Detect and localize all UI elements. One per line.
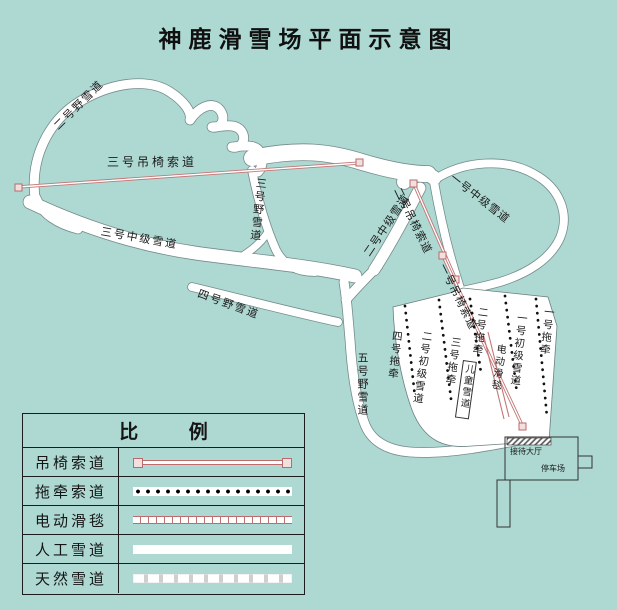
legend-box: 比 例 吊椅索道 拖牵索道 电动滑毯 人工雪道 天然雪道 [22,413,305,595]
parking-strip [497,480,510,527]
chairlift-line-symbol [138,460,287,465]
legend-label-tow: 拖牵索道 [23,477,119,505]
lift-label-chair-3: 三号吊椅索道 [107,156,197,168]
legend-label-carpet: 电动滑毯 [23,506,119,534]
tow-line-symbol [133,487,292,496]
carpet-line-symbol [133,516,292,524]
legend-label-chairlift: 吊椅索道 [23,448,119,476]
entrance-hatch [507,438,551,445]
legend-row-natural: 天然雪道 [23,564,304,593]
legend-row-artificial: 人工雪道 [23,535,304,564]
legend-title: 比 例 [23,414,304,448]
legend-row-carpet: 电动滑毯 [23,506,304,535]
legend-row-chairlift: 吊椅索道 [23,448,304,477]
artificial-trail-symbol [133,545,292,554]
building-annex [578,456,592,468]
page-title: 神鹿滑雪场平面示意图 [0,20,617,54]
natural-trail-symbol [133,574,292,583]
facility-label-reception: 接待大厅 [510,448,542,456]
facility-label-parking: 停车场 [541,465,565,473]
legend-row-tow: 拖牵索道 [23,477,304,506]
legend-label-artificial: 人工雪道 [23,535,119,563]
legend-label-natural: 天然雪道 [23,564,119,593]
ski-resort-map: 神鹿滑雪场平面示意图 二号野雪道 三号吊椅索道 三号野雪道 三号中级雪道 四号野… [0,0,617,610]
trail-label-wild-5: 五号野雪道 [357,352,368,426]
